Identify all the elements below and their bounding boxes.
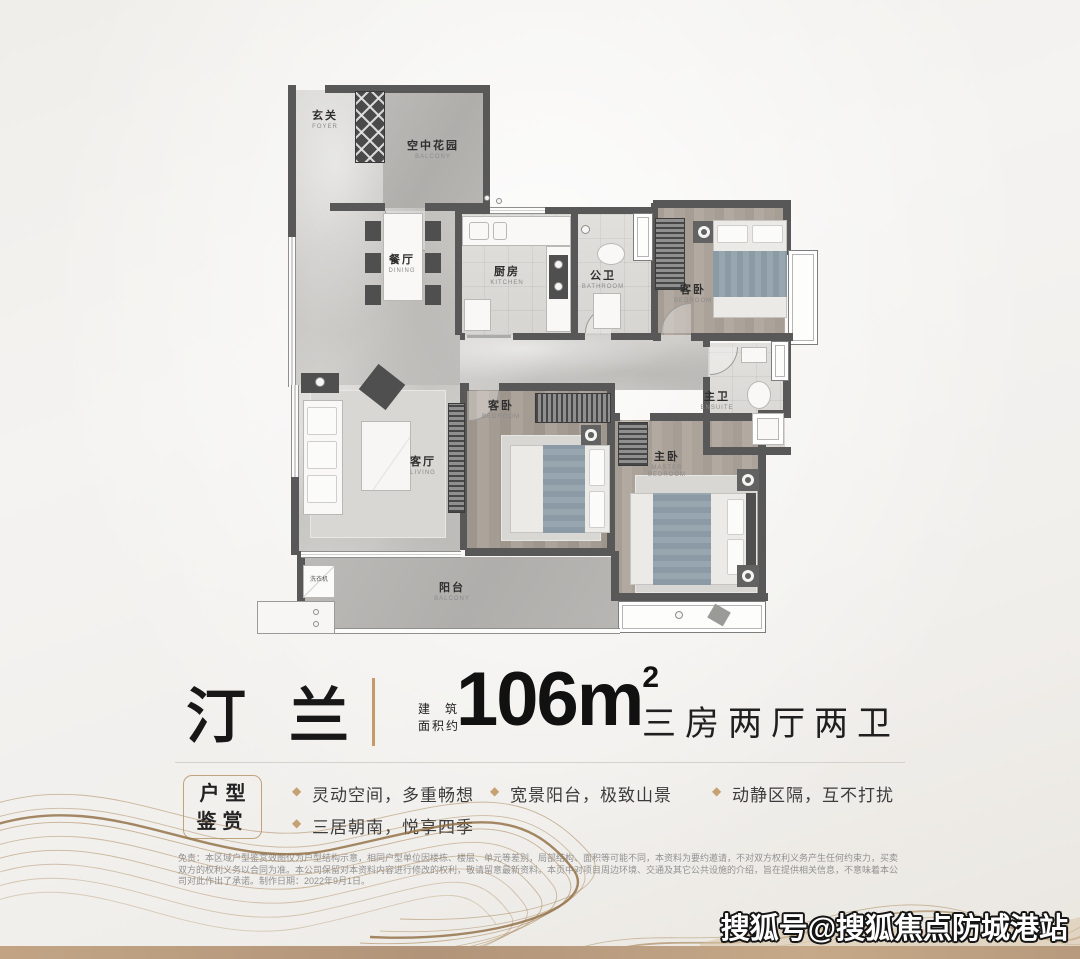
ensuite-window	[771, 341, 789, 381]
ac-unit-icon	[496, 198, 502, 204]
wall	[330, 203, 385, 211]
bay-window-master	[618, 601, 766, 633]
wall	[611, 551, 619, 601]
kitchen-sink	[493, 222, 507, 240]
sofa-cushion	[307, 441, 337, 469]
wall	[513, 333, 575, 340]
pillow	[589, 491, 605, 528]
blanket	[713, 251, 787, 297]
window	[490, 207, 545, 214]
window	[288, 237, 296, 387]
dining-chair	[425, 285, 441, 305]
toilet	[747, 381, 771, 409]
sofa-cushion	[307, 407, 337, 435]
bay-window-bedroom1	[788, 250, 818, 345]
dining-chair	[425, 221, 441, 241]
shower	[752, 413, 784, 445]
wall	[612, 413, 620, 421]
wall	[465, 548, 615, 556]
wall	[703, 377, 710, 453]
tv-wall-cabinet	[448, 403, 465, 513]
feature-item: 灵动空间，多重畅想	[312, 781, 474, 806]
floor-balcony	[303, 557, 618, 629]
floor-corridor	[460, 335, 710, 390]
floor-sky-garden	[383, 90, 485, 208]
wardrobe	[655, 218, 685, 290]
floor-plan: 洗衣机 玄关 FOYER 空中花园 BALCONY 餐厅 DINING 厨房 K…	[255, 85, 830, 655]
wall	[483, 85, 490, 210]
kitchen-sink	[469, 222, 489, 240]
toilet	[597, 243, 625, 265]
side-table-decor	[315, 377, 325, 387]
unit-name: 汀 兰	[186, 668, 363, 755]
wardrobe	[618, 422, 648, 466]
appreciation-badge: 户型 鉴赏	[183, 775, 262, 839]
blanket	[653, 493, 711, 585]
bathroom-sink	[593, 293, 621, 329]
window	[291, 385, 299, 477]
divider-line	[175, 762, 905, 763]
layout-description: 三房两厅两卫	[642, 696, 900, 745]
balcony-sliding-door	[301, 551, 461, 558]
wall	[325, 85, 490, 93]
ac-unit-icon	[484, 195, 490, 201]
gold-divider	[372, 678, 375, 746]
wall	[653, 333, 661, 341]
stove-burner	[554, 260, 563, 269]
pillow	[727, 499, 744, 535]
fridge	[464, 299, 491, 331]
bottom-tan-strip	[0, 946, 1080, 959]
dining-chair	[365, 285, 381, 305]
pillow	[717, 225, 748, 243]
wall	[291, 477, 299, 555]
dining-chair	[365, 253, 381, 273]
wall	[611, 333, 658, 340]
wall	[653, 200, 790, 208]
bay-window-decor	[675, 611, 683, 619]
wall	[703, 447, 791, 455]
wall	[575, 333, 585, 340]
bedside-rug	[737, 565, 759, 587]
dining-chair	[365, 221, 381, 241]
area-value: 106m2	[456, 656, 659, 743]
feature-item: 动静区隔，互不打扰	[732, 781, 894, 806]
wardrobe	[535, 393, 611, 423]
ac-platform	[257, 601, 335, 634]
foyer-cabinet	[355, 91, 385, 163]
washing-machine-label: 洗衣机	[304, 574, 334, 583]
feature-item: 三居朝南，悦享四季	[312, 813, 474, 838]
bedside-rug	[581, 425, 601, 445]
feature-item: 宽景阳台，极致山景	[510, 781, 672, 806]
pillow	[589, 449, 605, 486]
dining-table	[383, 213, 423, 301]
wall	[703, 340, 710, 347]
pillow	[752, 225, 783, 243]
wall	[460, 333, 465, 340]
wall	[455, 210, 462, 335]
bedside-rug	[737, 469, 759, 491]
shower-head-icon	[581, 225, 590, 234]
bedside-rug	[693, 221, 715, 243]
bullet-diamond-icon: ◆	[712, 784, 721, 798]
ensuite-sink	[741, 347, 767, 363]
wall	[612, 593, 768, 601]
bullet-diamond-icon: ◆	[490, 784, 499, 798]
coffee-table	[361, 421, 411, 491]
ac-platform-vent	[313, 609, 319, 615]
disclaimer-text: 免责：本区域户型鉴赏效图仅为户型结构示意，相同户型单位因楼栋、楼层、单元等差别，…	[178, 853, 905, 888]
wall	[571, 210, 578, 335]
stove-burner	[554, 282, 563, 291]
ac-platform-vent	[313, 621, 319, 627]
bullet-diamond-icon: ◆	[292, 816, 301, 830]
dining-chair	[425, 253, 441, 273]
bathroom-window	[633, 213, 653, 261]
kitchen-sliding-door	[467, 335, 511, 338]
watermark: 搜狐号@搜狐焦点防城港站	[721, 905, 1068, 947]
balcony-glass-railing	[302, 628, 620, 634]
sofa-cushion	[307, 475, 337, 503]
wall	[288, 85, 296, 237]
square-meter-sup: 2	[642, 661, 659, 694]
bullet-diamond-icon: ◆	[292, 784, 301, 798]
wall	[499, 383, 615, 391]
blanket	[543, 445, 585, 533]
